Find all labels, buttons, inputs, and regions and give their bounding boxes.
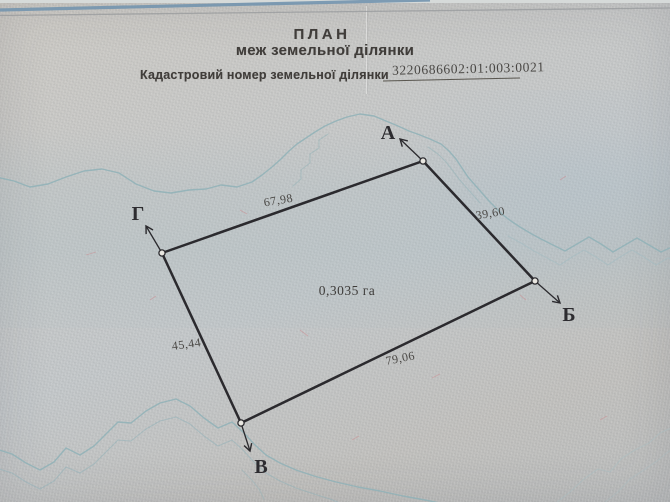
plan-subtitle: меж земельної ділянки [225, 42, 425, 59]
vertex-label-a: А [381, 122, 396, 144]
contour-right-zigzag [508, 236, 670, 265]
side-length-left: 45,44 [171, 335, 202, 353]
vertex-label-v: В [254, 456, 267, 478]
vertex-marker-a [420, 158, 426, 164]
arrow-vertex-g [146, 226, 162, 253]
vertex-marker-g [159, 250, 165, 256]
vertex-label-g: Г [132, 203, 145, 225]
vertex-marker-v [238, 420, 244, 426]
scan-fiber-marks [86, 176, 607, 440]
vertex-label-b: Б [562, 304, 575, 326]
arrow-vertex-b [535, 281, 560, 303]
contour-stairs [293, 134, 328, 186]
side-length-right: 39,60 [475, 204, 506, 223]
contour-bottom-left-1 [0, 399, 440, 502]
contour-bottom-right-1 [556, 428, 670, 502]
cadastral-label: Кадастровий номер земельної ділянки [140, 68, 389, 82]
contour-upper [0, 114, 670, 252]
arrow-vertex-a [400, 139, 423, 161]
sheet-top-edge [0, 0, 670, 16]
plan-title: ПЛАН [222, 26, 422, 43]
scanned-plan-page: А Б В Г 67,98 39,60 79,06 45,44 0,3035 г… [0, 0, 670, 502]
contour-bottom-left-2 [0, 417, 340, 502]
vertex-marker-b [532, 278, 538, 284]
area-label: 0,3035 га [319, 283, 376, 298]
side-length-top: 67,98 [263, 191, 294, 210]
contour-bottom-right-2 [604, 448, 670, 502]
arrow-vertex-v [241, 423, 250, 451]
